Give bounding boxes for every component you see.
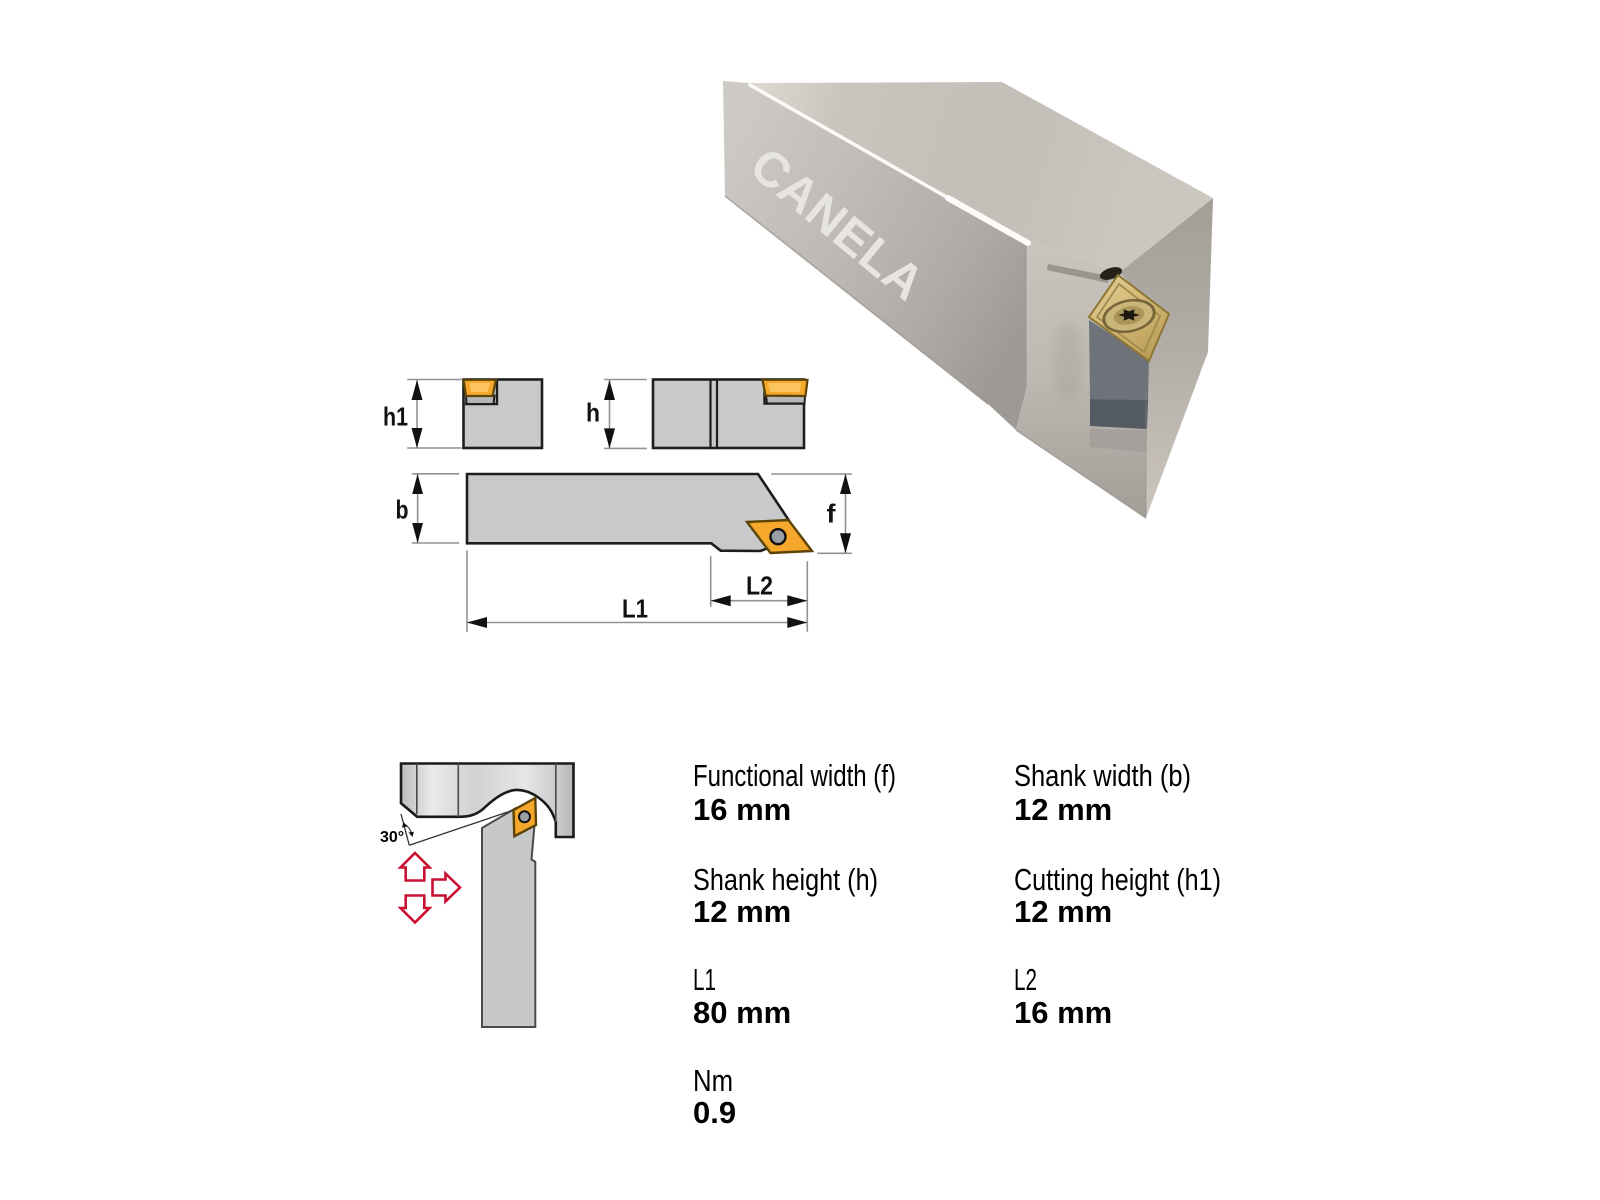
svg-text:L2: L2	[1014, 962, 1037, 997]
svg-text:80 mm: 80 mm	[693, 995, 791, 1030]
svg-text:Nm: Nm	[693, 1063, 733, 1098]
svg-text:Shank width (b): Shank width (b)	[1014, 758, 1191, 793]
svg-text:L2: L2	[746, 571, 773, 601]
svg-text:h1: h1	[383, 402, 408, 432]
svg-text:L1: L1	[693, 962, 716, 997]
svg-text:b: b	[396, 495, 409, 525]
svg-text:16 mm: 16 mm	[693, 792, 791, 827]
svg-text:Functional width (f): Functional width (f)	[693, 758, 896, 793]
svg-text:Cutting height (h1): Cutting height (h1)	[1014, 862, 1221, 897]
svg-text:12 mm: 12 mm	[1014, 792, 1112, 827]
svg-text:30°: 30°	[380, 829, 404, 846]
svg-text:16 mm: 16 mm	[1014, 995, 1112, 1030]
svg-text:Shank height (h): Shank height (h)	[693, 862, 878, 897]
svg-text:12 mm: 12 mm	[1014, 894, 1112, 929]
svg-text:f: f	[827, 499, 836, 529]
svg-text:0.9: 0.9	[693, 1095, 736, 1130]
svg-text:h: h	[586, 398, 600, 428]
svg-text:12 mm: 12 mm	[693, 894, 791, 929]
svg-text:L1: L1	[622, 594, 648, 624]
